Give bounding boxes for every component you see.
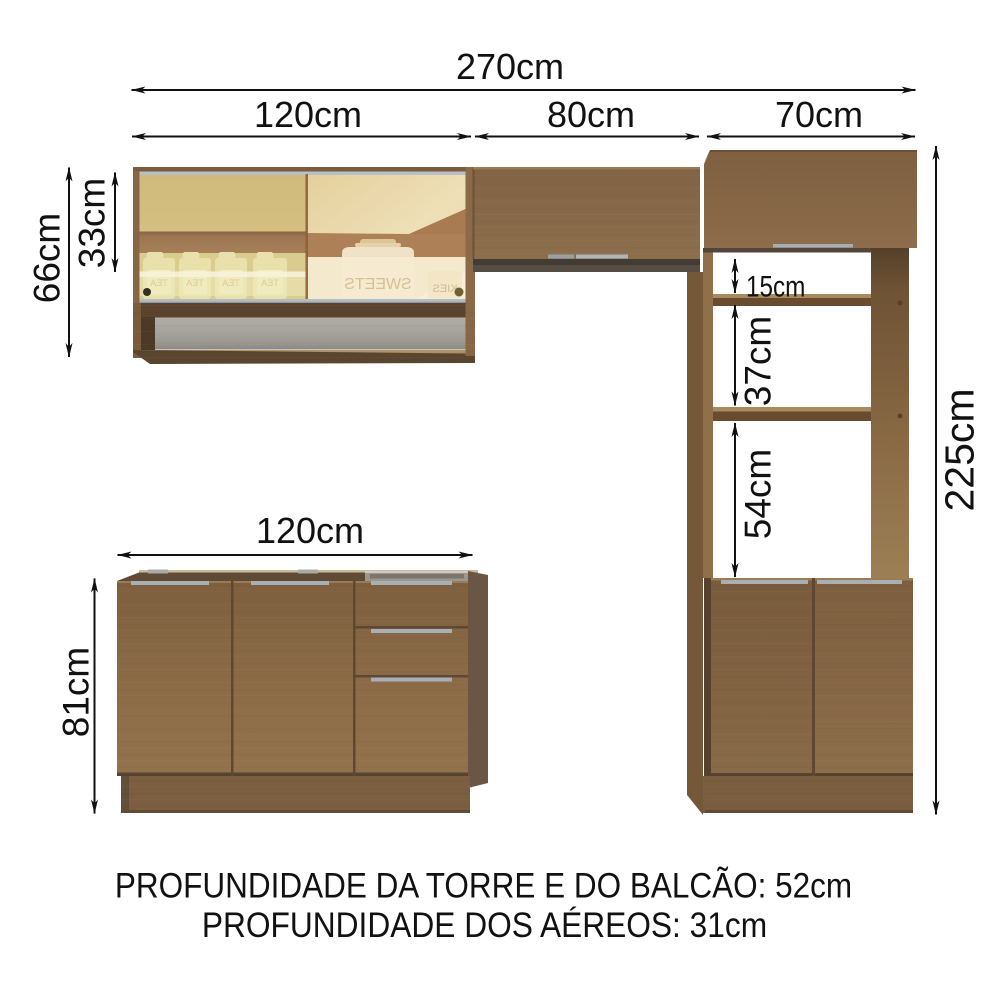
svg-text:80cm: 80cm (547, 94, 635, 135)
svg-text:TEA: TEA (222, 278, 240, 288)
svg-text:81cm: 81cm (56, 647, 97, 737)
svg-text:120cm: 120cm (254, 94, 362, 135)
svg-text:15cm: 15cm (746, 269, 805, 303)
svg-text:TEA: TEA (150, 278, 168, 288)
svg-text:PROFUNDIDADE DA TORRE E DO BAL: PROFUNDIDADE DA TORRE E DO BALCÃO: 52cm (115, 866, 852, 906)
svg-text:66cm: 66cm (27, 213, 68, 303)
svg-text:TEA: TEA (261, 278, 279, 288)
svg-text:37cm: 37cm (738, 316, 779, 406)
svg-text:225cm: 225cm (937, 388, 983, 511)
svg-text:120cm: 120cm (256, 510, 364, 551)
svg-text:270cm: 270cm (456, 46, 564, 87)
svg-text:TEA: TEA (186, 278, 204, 288)
svg-text:54cm: 54cm (738, 449, 779, 539)
svg-text:33cm: 33cm (72, 178, 113, 268)
svg-text:70cm: 70cm (775, 94, 863, 135)
svg-text:PROFUNDIDADE DOS AÉREOS: 31cm: PROFUNDIDADE DOS AÉREOS: 31cm (202, 907, 767, 946)
